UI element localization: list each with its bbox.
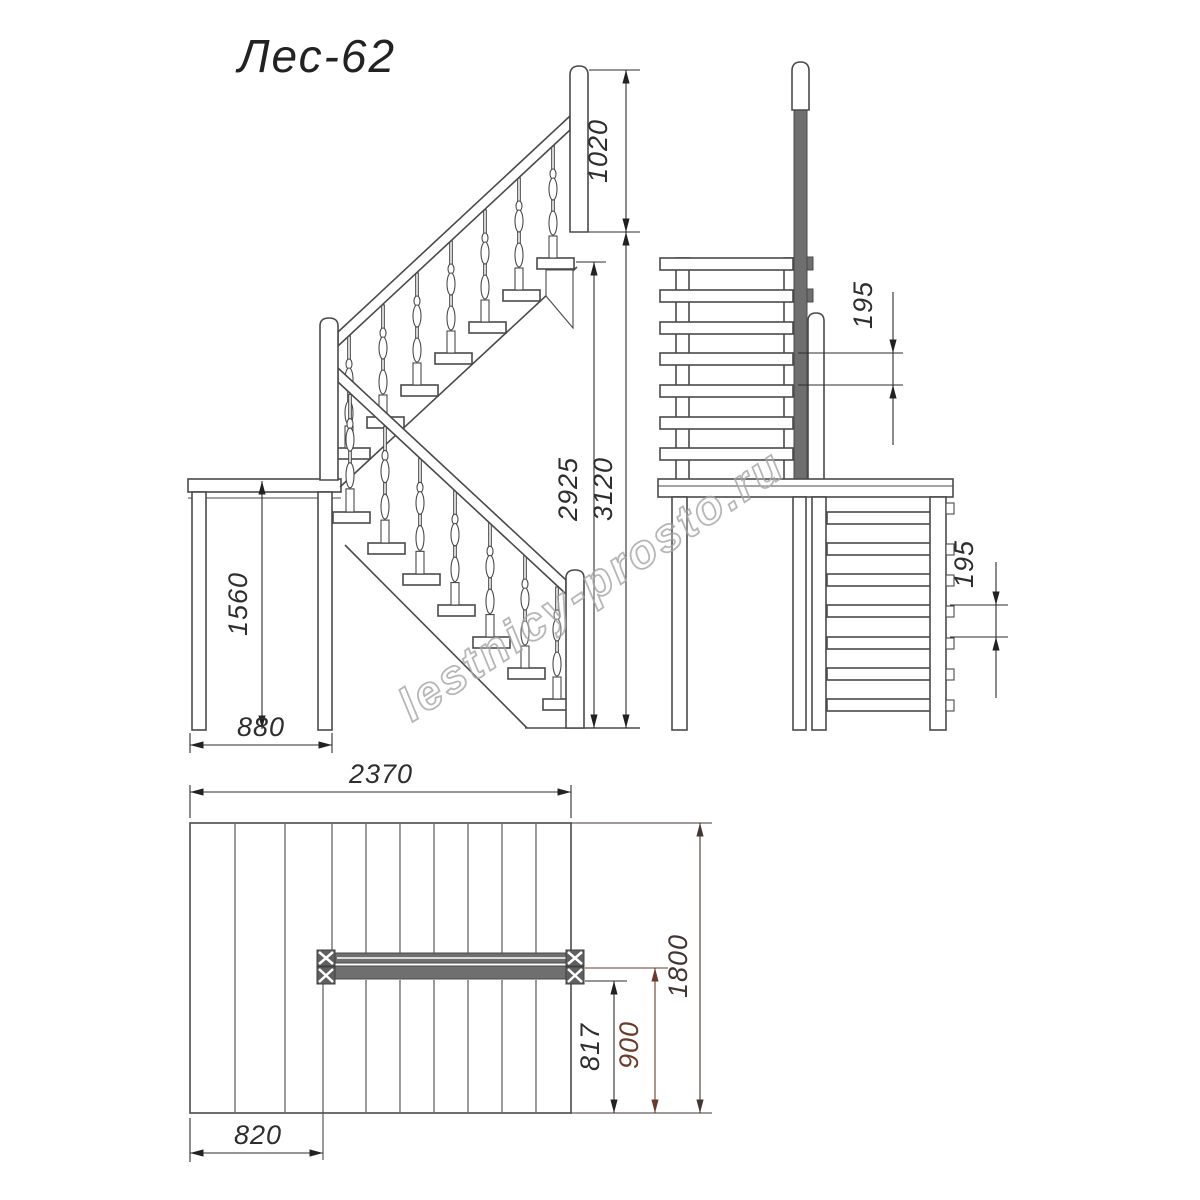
plan-post: [317, 967, 335, 984]
front-landing-newel: [808, 313, 824, 480]
drawing-sheet: 1020 3120 2925 1560 880: [0, 0, 1200, 1200]
plan-view: 2370 820 1800 900: [190, 759, 712, 1162]
staircase-technical-drawing: 1020 3120 2925 1560 880: [0, 0, 1200, 1200]
dim-label-1800: 1800: [663, 934, 693, 998]
plan-post: [317, 950, 335, 966]
plan-post: [566, 950, 584, 966]
top-tread-bracket: [546, 270, 573, 328]
dim-2370: 2370: [190, 759, 571, 818]
dim-label-1020: 1020: [583, 119, 613, 183]
front-lower-treads: [827, 512, 931, 711]
dim-label-2370: 2370: [348, 759, 413, 789]
dim-label-817: 817: [575, 1023, 605, 1071]
plan-post: [566, 967, 584, 984]
dim-label-195-lower: 195: [949, 540, 979, 588]
dim-label-3120: 3120: [588, 457, 618, 521]
plan-handrails: [335, 953, 568, 979]
front-top-cap-post: [792, 62, 809, 110]
plan-landing-boards: [235, 824, 285, 1112]
dim-label-880: 880: [237, 712, 285, 742]
dim-880: 880: [190, 712, 332, 753]
side-landing-platform: [188, 479, 341, 730]
dim-label-1560: 1560: [223, 572, 253, 636]
plan-upper-tread-lines: [332, 824, 536, 953]
plan-lower-tread-lines: [323, 980, 536, 1160]
dim-label-900: 900: [614, 1021, 644, 1069]
dim-1560: 1560: [223, 481, 266, 729]
front-tread-stubs: [946, 503, 954, 711]
dim-label-195-upper: 195: [848, 281, 878, 329]
front-elevation-view: 195 195: [658, 62, 1008, 730]
dim-195-lower: 195: [949, 540, 1008, 698]
landing-newel-post: [320, 318, 338, 480]
dim-label-820: 820: [234, 1120, 282, 1150]
side-elevation-view: 1020 3120 2925 1560 880: [188, 66, 640, 753]
dim-1020: 1020: [583, 70, 640, 232]
drawing-title: Лес-62: [235, 30, 396, 82]
dim-label-2925: 2925: [553, 457, 583, 522]
dim-820: 820: [190, 1118, 323, 1162]
